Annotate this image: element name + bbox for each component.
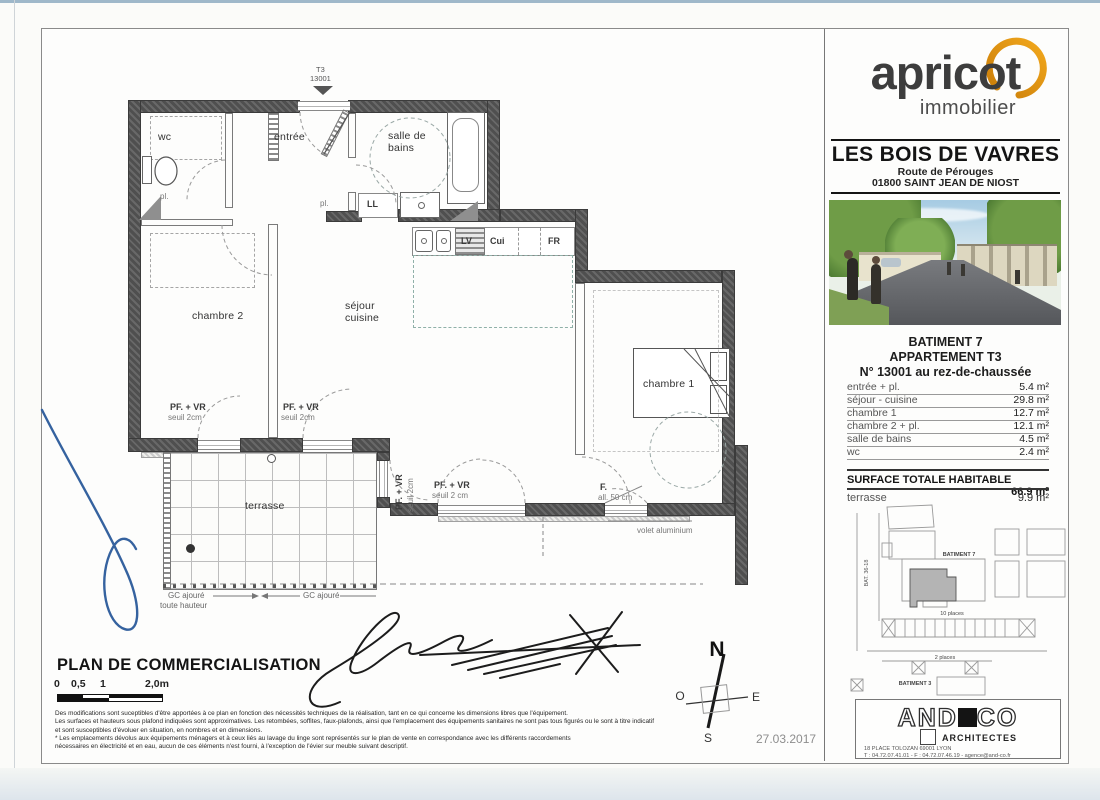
window-label-pfvr-3: PF. + VR bbox=[394, 454, 404, 510]
shutter-strip bbox=[438, 516, 690, 522]
area-value: 29.8 m² bbox=[1013, 394, 1049, 406]
project-title: LES BOIS DE VAVRES bbox=[825, 143, 1066, 167]
unit-tag-number: 13001 bbox=[310, 75, 331, 84]
scanned-document-page: T3 13001 bbox=[0, 0, 1100, 800]
window-pfvr-sejour bbox=[438, 505, 525, 514]
area-label: chambre 2 + pl. bbox=[847, 420, 920, 432]
divider bbox=[847, 469, 1049, 471]
scale-segment bbox=[83, 695, 109, 701]
area-value: 2.4 m² bbox=[1019, 446, 1049, 458]
legal-line: Les surfaces et hauteurs sous plafond in… bbox=[55, 718, 965, 726]
bathtub-inner bbox=[452, 118, 479, 192]
wall bbox=[735, 445, 748, 585]
window-label-pfvr-2: PF. + VR bbox=[283, 402, 319, 412]
area-value: 12.1 m² bbox=[1013, 420, 1049, 432]
partition-wall bbox=[268, 224, 278, 438]
siteplan-label-batiment7: BATIMENT 7 bbox=[943, 552, 976, 558]
area-value: 5.4 m² bbox=[1019, 381, 1049, 393]
siteplan-label-2places: 2 places bbox=[935, 655, 956, 661]
area-label: salle de bains bbox=[847, 433, 911, 445]
window-label-seuil-3: seuil 2cm bbox=[406, 452, 415, 512]
photo-person-2 bbox=[871, 264, 881, 304]
divider bbox=[831, 192, 1060, 194]
table-row: chambre 2 + pl.12.1 m² bbox=[847, 420, 1049, 434]
unit-building: BATIMENT 7 bbox=[825, 335, 1066, 349]
scale-tick: 1 bbox=[100, 678, 106, 690]
wall bbox=[647, 503, 735, 516]
label-gc-ajoure-right: GC ajouré bbox=[303, 591, 339, 600]
area-label: entrée + pl. bbox=[847, 381, 900, 393]
washing-machine-slot bbox=[358, 193, 398, 218]
label-placard-2: pl. bbox=[320, 199, 328, 208]
partition-wall bbox=[575, 283, 585, 455]
entrance-marker-icon bbox=[313, 86, 333, 95]
partition-wall bbox=[348, 192, 356, 211]
room-label-sdb: salle de bains bbox=[388, 130, 426, 154]
terrace-openwork-edge bbox=[163, 584, 377, 588]
room-label-terrasse: terrasse bbox=[245, 500, 285, 512]
unit-number: N° 13001 au rez-de-chaussée bbox=[825, 365, 1066, 379]
architect-contact-line: T : 04.72.07.41.01 - F : 04.72.07.46.19 … bbox=[864, 753, 1011, 760]
window-label-pfvr-4: PF. + VR bbox=[434, 480, 470, 490]
window-pfvr-vertical bbox=[379, 461, 388, 497]
wall bbox=[128, 100, 141, 445]
window-pfvr-1 bbox=[198, 440, 240, 450]
legal-text: Des modifications sont suceptibles d'êtr… bbox=[55, 710, 965, 751]
area-label: chambre 1 bbox=[847, 407, 897, 419]
terrace-deck bbox=[163, 452, 377, 590]
photo-person-2-head bbox=[872, 256, 880, 264]
scale-bar bbox=[57, 694, 163, 702]
room-label-chambre1: chambre 1 bbox=[643, 378, 694, 390]
area-value: 12.7 m² bbox=[1013, 407, 1049, 419]
plan-date: 27.03.2017 bbox=[756, 732, 816, 746]
project-address-2: 01800 SAINT JEAN DE NIOST bbox=[825, 177, 1066, 189]
legal-line: Des modifications sont suceptibles d'êtr… bbox=[55, 710, 965, 718]
area-label: séjour - cuisine bbox=[847, 394, 918, 406]
highlighted-unit bbox=[910, 569, 956, 607]
photo-car bbox=[881, 258, 901, 267]
window-label-f: F. bbox=[600, 482, 607, 492]
window-label-seuil-4: seuil 2 cm bbox=[432, 491, 468, 500]
wall bbox=[575, 270, 722, 283]
wall bbox=[377, 452, 390, 461]
terrace-screen bbox=[163, 452, 171, 590]
wall bbox=[487, 100, 500, 222]
architect-name-co: CO bbox=[977, 704, 1019, 732]
counter-divider bbox=[540, 228, 542, 255]
divider bbox=[847, 488, 1049, 490]
scan-edge-left bbox=[14, 0, 15, 770]
sink-drain-icon bbox=[421, 238, 427, 244]
post-icon bbox=[267, 454, 276, 463]
faucet-icon bbox=[418, 202, 425, 209]
scale-segment bbox=[109, 695, 162, 701]
partition-wall bbox=[141, 219, 233, 226]
label-gc-ajoure-left: GC ajouré bbox=[168, 591, 204, 600]
plan-title: PLAN DE COMMERCIALISATION bbox=[57, 656, 321, 675]
window-label-pfvr-1: PF. + VR bbox=[170, 402, 206, 412]
siteplan-label-batiment3: BATIMENT 3 bbox=[899, 681, 932, 687]
wall bbox=[128, 100, 300, 113]
window-label-allege: all. 50 cm bbox=[598, 493, 632, 502]
wall bbox=[377, 497, 390, 508]
drain-dot-icon bbox=[186, 544, 195, 553]
wall bbox=[240, 438, 303, 452]
scale-tick: 0,5 bbox=[71, 678, 86, 690]
scan-edge-top bbox=[0, 0, 1100, 3]
photo-person-1-head bbox=[844, 250, 853, 259]
area-value: 4.5 m² bbox=[1019, 433, 1049, 445]
wall bbox=[525, 503, 605, 516]
window-label-seuil-2: seuil 2cm bbox=[281, 413, 315, 422]
toilet-tank bbox=[142, 156, 152, 184]
table-row: chambre 112.7 m² bbox=[847, 407, 1049, 421]
sink-drain-icon bbox=[441, 238, 447, 244]
label-lave-linge: LL bbox=[367, 199, 378, 209]
label-frigo: FR bbox=[548, 236, 560, 246]
wall bbox=[128, 438, 198, 452]
kitchen-zone-dashed bbox=[413, 255, 573, 328]
legal-line: nécessaires en électricité et en eau, au… bbox=[55, 743, 965, 751]
table-row: salle de bains4.5 m² bbox=[847, 433, 1049, 447]
divider bbox=[831, 139, 1060, 141]
counter-divider bbox=[518, 228, 520, 255]
legal-line: * Les emplacements dévolus aux équipemen… bbox=[55, 735, 965, 743]
legal-line: et sont susceptibles d'évoluer en situat… bbox=[55, 727, 965, 735]
room-label-entree: entrée bbox=[274, 131, 305, 143]
room-label-chambre2: chambre 2 bbox=[192, 310, 243, 322]
photo-person-4 bbox=[961, 264, 965, 276]
photo-person-3 bbox=[947, 262, 951, 275]
room-label-sejour: séjour cuisine bbox=[345, 300, 379, 324]
partition-wall bbox=[225, 113, 233, 208]
scale-tick: 2,0m bbox=[145, 678, 169, 690]
label-lave-vaisselle: LV bbox=[461, 236, 472, 246]
siteplan-label-10places: 10 places bbox=[940, 611, 964, 617]
project-photo bbox=[829, 200, 1061, 325]
label-volet-aluminium: volet aluminium bbox=[637, 526, 693, 535]
window-f-chambre1 bbox=[605, 505, 647, 514]
brand-name: apricot bbox=[825, 45, 1066, 100]
unit-type: APPARTEMENT T3 bbox=[825, 350, 1066, 364]
partition-wall bbox=[348, 113, 356, 158]
scale-tick: 0 bbox=[54, 678, 60, 690]
wall bbox=[326, 211, 362, 222]
photo-person-1 bbox=[847, 258, 858, 300]
circulation-dashed bbox=[593, 290, 719, 452]
label-gc-toute-hauteur: toute hauteur bbox=[160, 601, 207, 610]
site-plan: BAT. 36-18 BATIMENT 7 10 places 2 places… bbox=[827, 501, 1065, 699]
area-label: wc bbox=[847, 446, 860, 458]
scale-segment bbox=[58, 695, 83, 701]
photo-cyclist bbox=[1015, 270, 1020, 284]
window-label-seuil-1: seuil 2cm bbox=[168, 413, 202, 422]
table-row: séjour - cuisine29.8 m² bbox=[847, 394, 1049, 408]
table-row: wc2.4 m² bbox=[847, 446, 1049, 460]
wall bbox=[352, 438, 390, 452]
info-sidebar: apricot immobilier LES BOIS DE VAVRES Ro… bbox=[824, 29, 1066, 761]
siteplan-label-bat-left: BAT. 36-18 bbox=[864, 560, 870, 587]
room-label-wc: wc bbox=[158, 131, 171, 143]
scan-edge-bottom bbox=[0, 768, 1100, 800]
label-placard-1: pl. bbox=[160, 192, 168, 201]
wardrobe-dashed bbox=[150, 233, 255, 288]
label-cuisiniere: Cui bbox=[490, 236, 505, 246]
table-row: entrée + pl.5.4 m² bbox=[847, 381, 1049, 395]
total-label: SURFACE TOTALE HABITABLE bbox=[847, 474, 1011, 486]
brand-tagline: immobilier bbox=[825, 97, 1066, 120]
window-pfvr-2 bbox=[303, 440, 352, 450]
